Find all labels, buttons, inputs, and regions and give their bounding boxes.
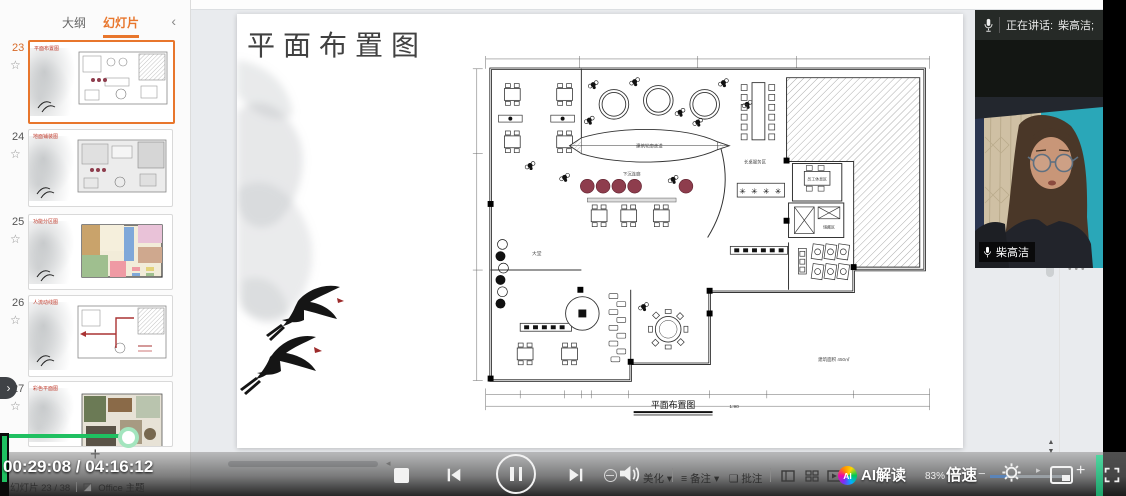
transition-star-icon[interactable]: ☆ <box>10 147 21 161</box>
current-slide: 平面布置图 <box>237 14 963 448</box>
microphone-icon <box>983 246 992 259</box>
previous-button[interactable] <box>445 466 463 484</box>
zoom-out-button[interactable]: − <box>978 466 986 481</box>
transition-star-icon[interactable]: ☆ <box>10 313 21 327</box>
dining-tables-topleft <box>499 84 575 153</box>
slides-panel: 大纲 幻灯片 ‹ 23 ☆ 平面布置图 <box>0 0 191 496</box>
theme-name[interactable]: Office 主题 <box>98 480 144 494</box>
participant-name-tag: 柴高洁 <box>979 242 1035 262</box>
transition-star-icon[interactable]: ☆ <box>10 232 21 246</box>
screen-right-letterbox <box>1103 0 1126 496</box>
picture-in-picture-button[interactable] <box>1050 466 1073 484</box>
participant-name: 柴高洁 <box>996 244 1029 260</box>
left-plants <box>496 239 509 308</box>
notes-button[interactable]: ≡ 备注 ▾ <box>681 471 719 486</box>
settings-gear-icon[interactable] <box>1000 461 1023 484</box>
editing-canvas: 平面布置图 <box>190 0 1103 496</box>
crane-illustrations <box>238 285 348 405</box>
slider-arrow-icon: ▸ <box>1036 465 1041 476</box>
meeting-empty-area <box>975 40 1103 97</box>
mini-floorplan <box>77 50 169 112</box>
playback-speed-button[interactable]: 倍速 <box>946 463 977 485</box>
pause-button[interactable] <box>496 454 536 494</box>
svg-text:✳: ✳ <box>751 187 758 196</box>
comments-button[interactable]: ❑ 批注 <box>729 471 762 486</box>
thumb-title: 人流动线图 <box>33 299 58 306</box>
speaking-bar: 正在讲话: 柴高洁; <box>975 10 1103 40</box>
speaking-name: 柴高洁; <box>1058 17 1094 33</box>
leaf-walkway: 建筑轮廓走道 <box>570 129 730 162</box>
mini-cranes-icon <box>35 180 59 200</box>
statusbar-separator <box>770 468 771 482</box>
longtable-label: 长桌服务区 <box>744 159 767 166</box>
area-label: 建筑面积 450㎡ <box>818 356 850 363</box>
mini-cranes-icon <box>35 263 59 283</box>
mini-cranes-icon <box>35 348 59 368</box>
floorplan-drawing: 建筑轮廓走道 下沉连廊 <box>470 55 965 420</box>
panel-tabs: 大纲 幻灯片 ‹ <box>0 10 190 36</box>
caption-text: 平面布置图 <box>651 399 695 410</box>
slide-number: 23 <box>12 42 24 54</box>
speaking-prefix: 正在讲话: <box>1006 17 1053 33</box>
thumbnail-slide-24[interactable]: 24 ☆ 地面铺装图 <box>0 129 190 209</box>
zoom-in-button[interactable]: + <box>1076 462 1085 480</box>
ai-interpret-button[interactable]: AI解读 <box>861 464 906 485</box>
mini-floorplan-colored <box>76 221 168 283</box>
thumbnail-slide-27[interactable]: 27 ☆ 彩色平面图 <box>0 381 190 449</box>
thumbnail-card[interactable]: 人流动线图 <box>28 295 173 377</box>
caption-scale: 1:90 <box>729 404 739 410</box>
staff-room: 员工休息区 <box>804 165 830 191</box>
transition-star-icon[interactable]: ☆ <box>10 58 21 72</box>
statusbar-separator <box>672 468 673 482</box>
video-progress-handle[interactable] <box>118 427 139 448</box>
walkway-label: 建筑轮廓走道 <box>636 143 663 150</box>
wps-window: 大纲 幻灯片 ‹ 23 ☆ 平面布置图 <box>0 0 1103 496</box>
long-table <box>741 83 775 140</box>
thumbnail-slide-23[interactable]: 23 ☆ 平面布置图 <box>0 40 190 124</box>
next-button[interactable] <box>567 466 585 484</box>
round-table <box>648 310 687 349</box>
thumb-title: 地面铺装图 <box>33 133 58 140</box>
thumbnail-card[interactable]: 平面布置图 <box>28 40 175 124</box>
crane-lower <box>240 336 322 395</box>
slide-number: 25 <box>12 216 24 228</box>
storage-label: 储藏区 <box>823 225 835 230</box>
meeting-panel: 正在讲话: 柴高洁; <box>975 10 1103 268</box>
volume-icon[interactable] <box>618 464 641 483</box>
feature-circle <box>566 297 600 331</box>
mini-floorplan-circulation <box>76 304 168 366</box>
bar-separator <box>999 17 1000 33</box>
lobby-label: 大堂 <box>532 250 542 257</box>
theme-icon <box>83 483 92 492</box>
work-desks <box>798 244 849 280</box>
collapse-panel-icon[interactable]: ‹ <box>171 13 176 29</box>
svg-text:✳: ✳ <box>763 187 770 196</box>
plan-caption: 平面布置图 1:90 <box>634 399 740 415</box>
microphone-icon <box>983 18 994 33</box>
planter-strip: ✳✳✳✳ <box>737 183 784 197</box>
stone-path <box>609 294 626 362</box>
storage-room: 储藏区 <box>794 207 839 234</box>
tree-clusters <box>525 78 752 311</box>
thumbnail-card[interactable]: 功能分区图 <box>28 214 173 290</box>
svg-text:✳: ✳ <box>739 187 746 196</box>
screen: 大纲 幻灯片 ‹ 23 ☆ 平面布置图 <box>0 0 1126 496</box>
tab-slides[interactable]: 幻灯片 <box>103 14 139 38</box>
thumbnail-slide-25[interactable]: 25 ☆ 功能分区图 <box>0 214 190 292</box>
round-planters <box>599 86 719 120</box>
right-divider <box>1059 268 1060 452</box>
slide-counter: 幻灯片 23 / 38 <box>10 480 70 494</box>
staff-label: 员工休息区 <box>807 176 827 181</box>
fullscreen-button[interactable] <box>1104 467 1120 483</box>
green-accent-right <box>1096 455 1103 496</box>
checkered-counters <box>520 246 787 331</box>
mini-floorplan <box>76 138 168 200</box>
person-mouth <box>1048 181 1056 186</box>
statusbar-separator <box>76 482 77 492</box>
slide-number: 24 <box>12 131 24 143</box>
ai-badge-icon[interactable]: AI <box>838 466 857 485</box>
tab-outline[interactable]: 大纲 <box>62 14 86 31</box>
thumb-title: 平面布置图 <box>34 45 59 52</box>
thumb-title: 功能分区图 <box>33 218 58 225</box>
slide-number: 26 <box>12 297 24 309</box>
playback-time: 00:29:08 / 04:16:12 <box>3 457 153 477</box>
red-trees <box>580 179 692 193</box>
video-progress-bar[interactable] <box>0 434 127 438</box>
beautify-button[interactable]: 美化 ▾ <box>643 471 672 486</box>
loop-icon[interactable] <box>604 469 617 482</box>
sunken-label: 下沉连廊 <box>623 170 641 177</box>
thumbnail-card[interactable]: 地面铺装图 <box>28 129 173 207</box>
thumbnail-slide-26[interactable]: 26 ☆ 人流动线图 <box>0 295 190 379</box>
dining-tables-middle <box>587 198 676 227</box>
grid-view-icon[interactable] <box>805 470 819 482</box>
crane-upper <box>266 286 344 341</box>
zoom-percentage[interactable]: 83% <box>925 471 945 482</box>
thumb-title: 彩色平面图 <box>33 385 58 392</box>
svg-text:✳: ✳ <box>775 187 782 196</box>
dining-tables-bottom <box>517 343 577 365</box>
stop-button[interactable] <box>394 468 409 483</box>
mini-cranes-icon <box>36 94 60 114</box>
wps-statusbar-left: 幻灯片 23 / 38 Office 主题 <box>10 480 144 494</box>
transition-star-icon[interactable]: ☆ <box>10 399 21 413</box>
normal-view-icon[interactable] <box>781 470 795 482</box>
